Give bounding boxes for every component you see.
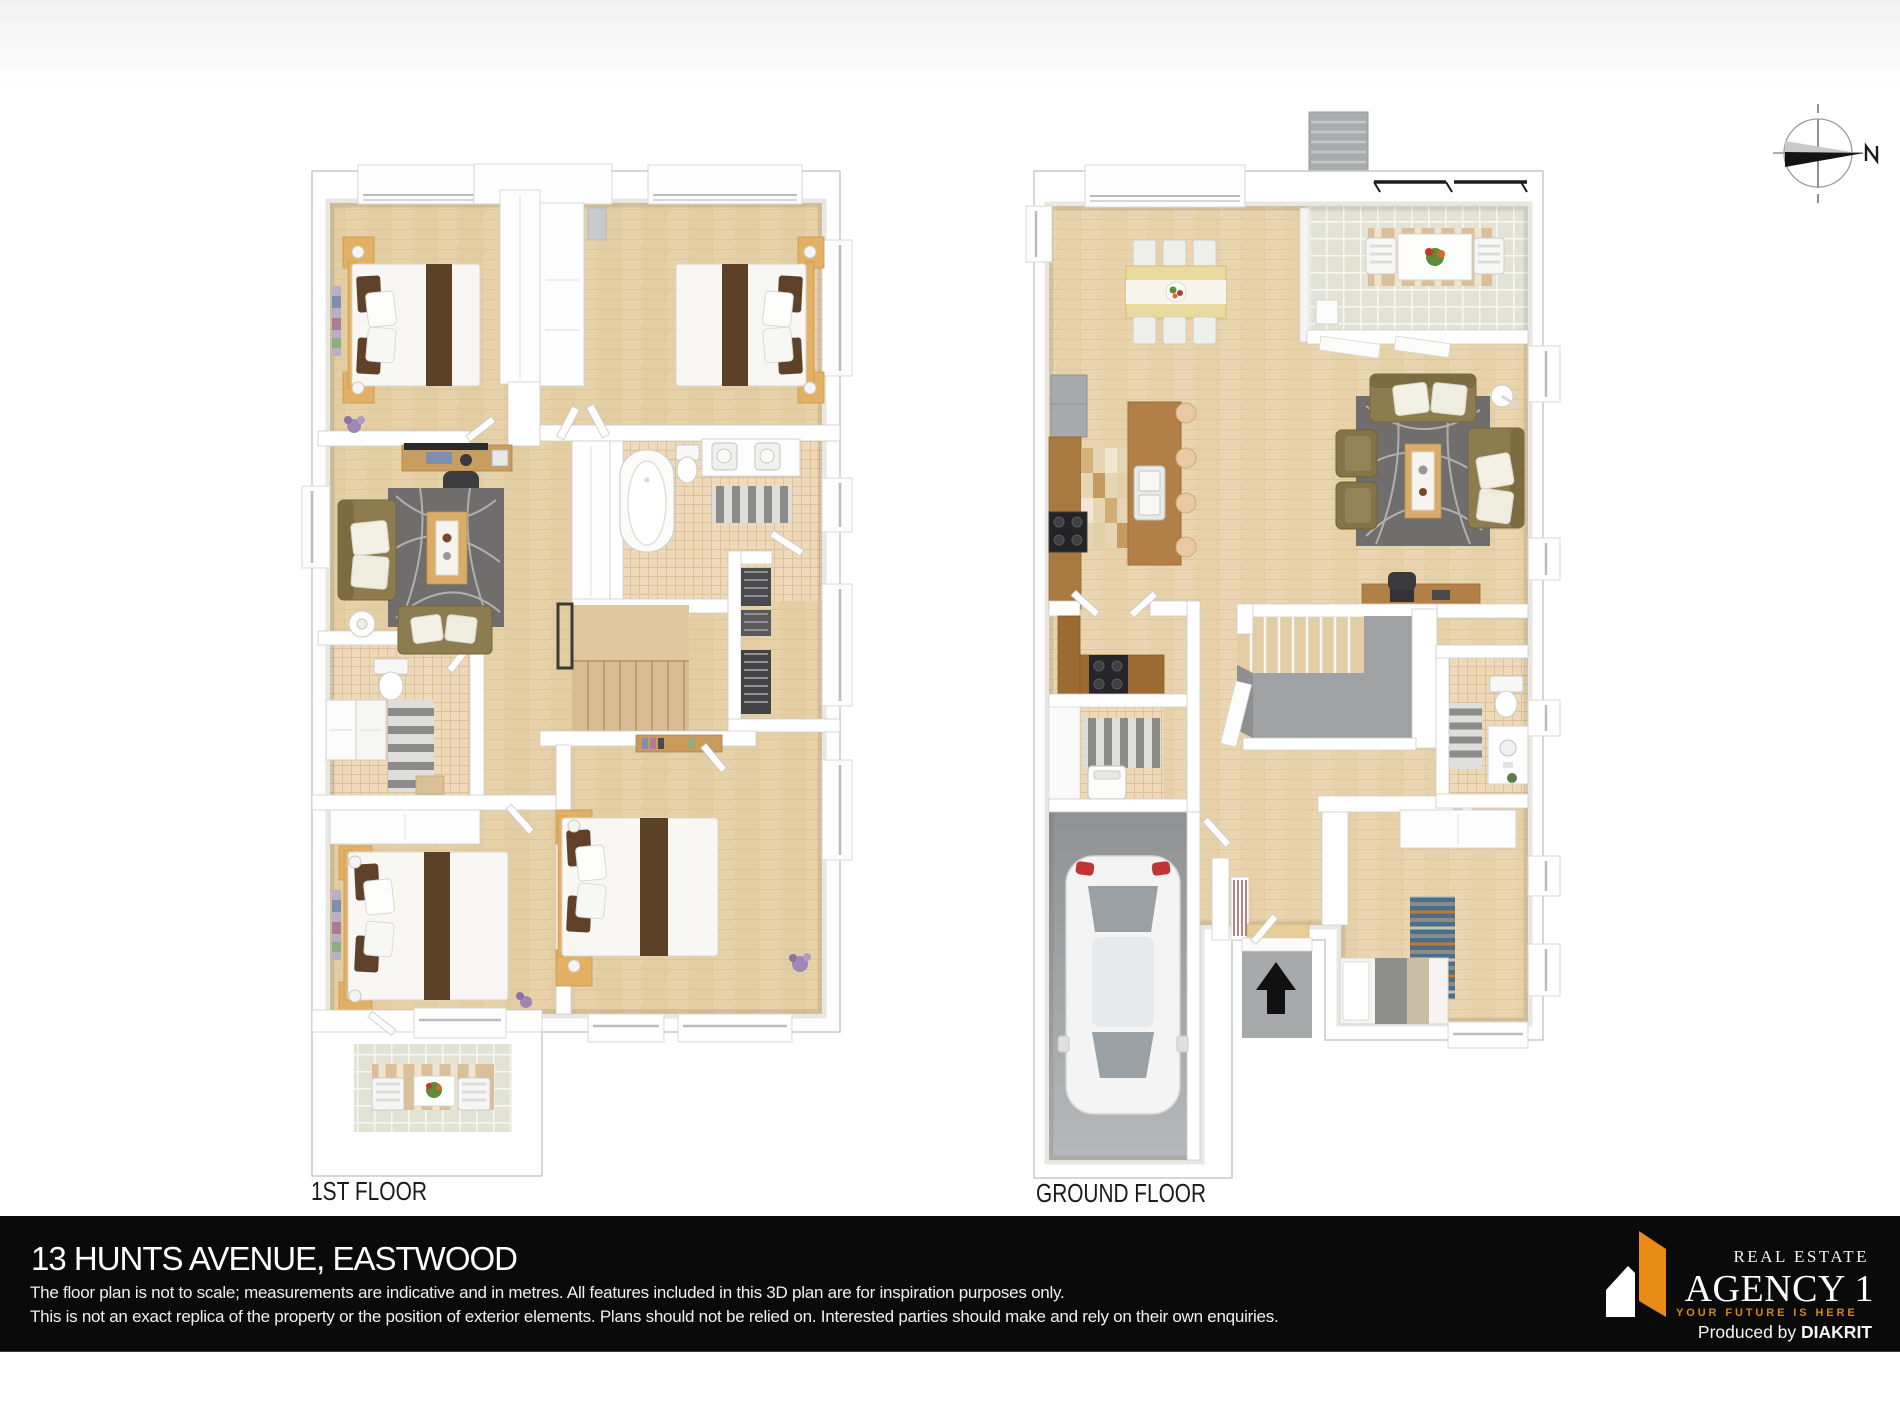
svg-text:GROUND FLOOR: GROUND FLOOR — [1036, 1178, 1206, 1208]
svg-text:1ST FLOOR: 1ST FLOOR — [311, 1176, 427, 1206]
svg-text:Produced by DIAKRIT: Produced by DIAKRIT — [1698, 1322, 1872, 1342]
svg-text:YOUR FUTURE IS HERE: YOUR FUTURE IS HERE — [1676, 1307, 1858, 1319]
svg-text:REAL ESTATE: REAL ESTATE — [1733, 1247, 1869, 1266]
svg-text:AGENCY 1: AGENCY 1 — [1685, 1268, 1874, 1310]
